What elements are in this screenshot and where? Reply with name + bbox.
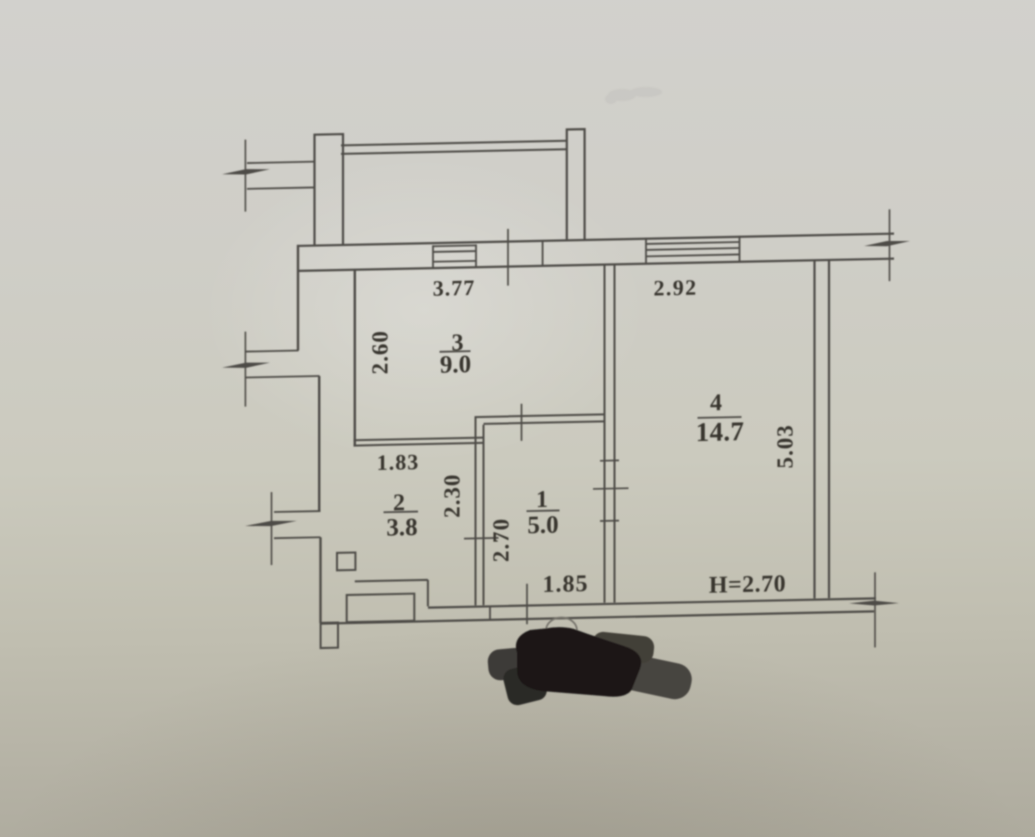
svg-text:14.7: 14.7: [696, 416, 744, 447]
svg-text:9.0: 9.0: [440, 351, 471, 379]
svg-text:H=2.70: H=2.70: [709, 571, 786, 599]
svg-text:2.92: 2.92: [653, 275, 697, 301]
svg-text:4: 4: [710, 390, 722, 416]
svg-text:5.0: 5.0: [527, 512, 558, 540]
svg-text:1.83: 1.83: [377, 449, 420, 475]
svg-text:3.8: 3.8: [386, 514, 417, 542]
svg-text:3.77: 3.77: [433, 275, 476, 301]
svg-text:2.70: 2.70: [489, 518, 514, 563]
svg-text:1: 1: [536, 487, 548, 513]
svg-text:2.30: 2.30: [440, 473, 465, 518]
svg-text:1.85: 1.85: [542, 571, 588, 598]
svg-text:5.03: 5.03: [773, 424, 798, 469]
svg-text:2.60: 2.60: [368, 330, 393, 375]
